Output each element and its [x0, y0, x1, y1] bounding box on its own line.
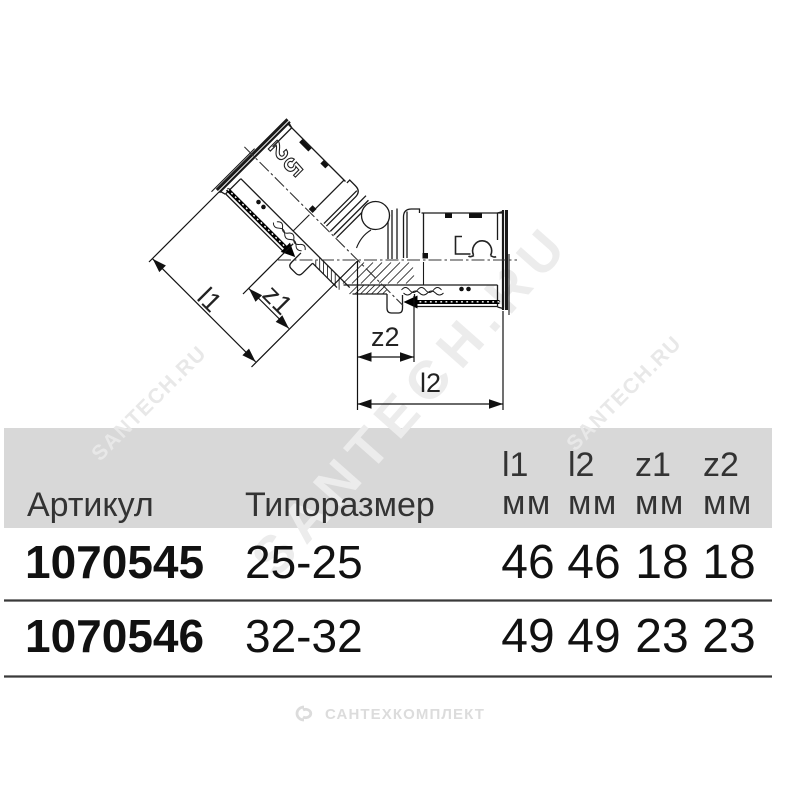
svg-text:мм: мм — [703, 484, 753, 522]
svg-text:1070546: 1070546 — [25, 610, 204, 662]
svg-text:25-25: 25-25 — [245, 536, 363, 588]
svg-text:z2: z2 — [371, 322, 400, 352]
svg-text:мм: мм — [635, 484, 685, 522]
svg-text:18: 18 — [635, 536, 688, 589]
svg-text:18: 18 — [702, 536, 755, 589]
svg-text:Артикул: Артикул — [27, 486, 154, 524]
svg-text:49: 49 — [567, 610, 620, 663]
svg-text:z2: z2 — [703, 446, 739, 484]
svg-text:46: 46 — [567, 536, 620, 589]
svg-text:мм: мм — [568, 484, 618, 522]
svg-text:мм: мм — [502, 484, 552, 522]
svg-text:1070545: 1070545 — [25, 536, 204, 588]
svg-text:49: 49 — [501, 610, 554, 663]
svg-text:l2: l2 — [568, 446, 594, 484]
svg-text:l2: l2 — [420, 368, 441, 398]
svg-text:23: 23 — [635, 610, 688, 663]
svg-text:l1: l1 — [502, 446, 528, 484]
svg-text:Типоразмер: Типоразмер — [245, 486, 435, 524]
svg-text:z1: z1 — [635, 446, 671, 484]
svg-text:32-32: 32-32 — [245, 610, 363, 662]
svg-text:23: 23 — [702, 610, 755, 663]
svg-text:46: 46 — [501, 536, 554, 589]
svg-text:САНТЕХКОМПЛЕКТ: САНТЕХКОМПЛЕКТ — [325, 706, 485, 723]
